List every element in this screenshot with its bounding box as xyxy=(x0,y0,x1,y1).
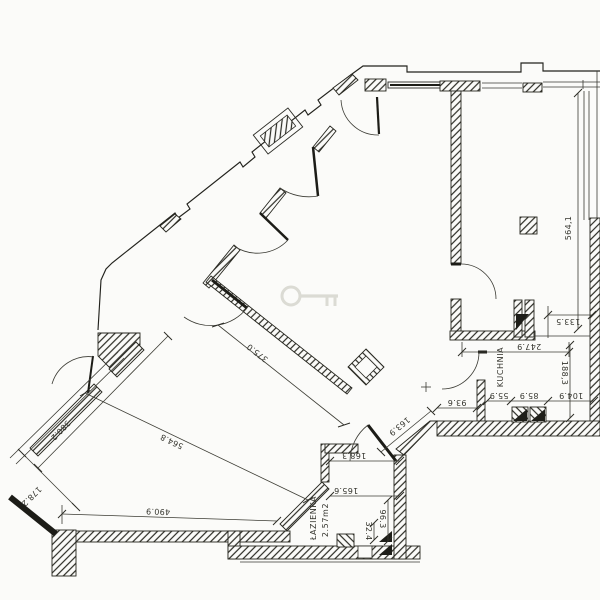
dim-label: 85.9 xyxy=(519,391,538,400)
dimensions: 564,1 133.5 247.9 188,3 xyxy=(18,89,598,545)
dim-label: 188,3 xyxy=(560,361,569,385)
kitchen-fixtures xyxy=(512,407,546,422)
door-leaf xyxy=(212,280,247,308)
dim-label: 165.6 xyxy=(334,486,358,495)
entry-door-arc xyxy=(341,100,379,135)
dim-label: 247.9 xyxy=(517,342,541,351)
dim-kitchen-top: 133.5 xyxy=(544,306,596,338)
wall-segment xyxy=(333,74,358,95)
dim-kitchen-bottom-chain: 55.9 85.9 104.9 xyxy=(483,391,598,405)
key-watermark xyxy=(282,287,338,306)
dim-label: 163.9 xyxy=(387,415,411,438)
dim-label: 96.3 xyxy=(378,509,387,528)
balcony-rail xyxy=(16,358,124,464)
living-bottom-wall xyxy=(10,497,420,576)
column xyxy=(520,217,537,234)
door-arc xyxy=(442,352,479,389)
dim-kitchen-height: 188,3 xyxy=(560,341,574,422)
dim-bath-small: 32.4 xyxy=(364,519,378,544)
dim-living-left: 178.2 xyxy=(18,449,80,511)
dim-right-room-height: 564,1 xyxy=(564,89,582,333)
outer-boundary-top xyxy=(352,63,600,74)
window-radiator-symbol xyxy=(253,108,302,154)
wall-pier xyxy=(52,530,76,576)
dim-label: 375.0 xyxy=(245,342,270,364)
dim-label: 32.4 xyxy=(364,521,373,540)
door-arc xyxy=(184,308,247,326)
dim-label: 490.9 xyxy=(146,507,171,517)
scanned-floorplan-page: 564,1 133.5 247.9 188,3 xyxy=(0,0,600,600)
dim-living-diagonal: 564.8 xyxy=(80,390,313,503)
thick-corner-wall xyxy=(10,497,56,534)
dim-label: 168.3 xyxy=(342,451,366,460)
dim-label: 178.2 xyxy=(20,485,44,509)
dim-label: 55.9 xyxy=(489,391,508,400)
door-leaf xyxy=(260,213,288,240)
balcony-door-arc xyxy=(52,357,94,384)
door-leaf xyxy=(313,147,318,196)
entry-door-leaf xyxy=(377,97,379,134)
bathroom-label: ŁAZIENKA xyxy=(309,496,318,541)
dim-living-bottom: 490.9 xyxy=(58,505,281,525)
dim-label: 93.6 xyxy=(447,398,466,407)
hall-wall xyxy=(184,276,384,394)
dim-label: 104.9 xyxy=(559,391,583,400)
dim-label: 564,1 xyxy=(564,216,573,240)
dim-kitchen-width: 247.9 xyxy=(458,342,573,357)
bathroom-area-label: 2.57m2 xyxy=(321,503,330,537)
kitchen-label: KUCHNIA xyxy=(496,347,505,388)
living-nw-wall xyxy=(10,333,144,464)
dim-kitchen-door: 93.6 xyxy=(421,382,481,412)
dim-bath-inner: 165.6 xyxy=(326,486,404,500)
door-arc xyxy=(461,264,496,299)
floorplan-drawing: 564,1 133.5 247.9 188,3 xyxy=(0,0,600,600)
door-arc xyxy=(234,240,288,253)
dim-label: 133.5 xyxy=(556,317,580,326)
